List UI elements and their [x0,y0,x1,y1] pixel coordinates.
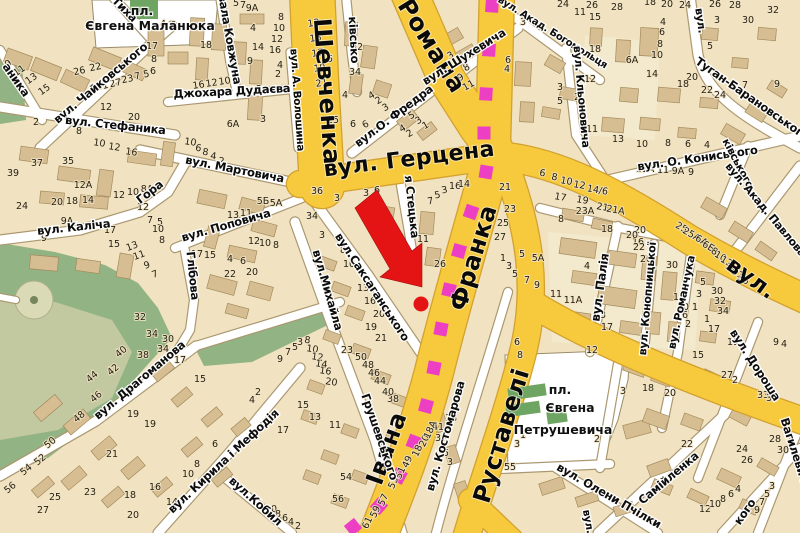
building-number: 16 [149,482,161,493]
building-number: 6 [150,66,156,77]
map-viewport[interactable]: 9111315226223127237512208101216353739178… [0,0,800,533]
building-number: 9 [688,167,694,178]
building-number: 22 [633,242,645,253]
building-number: 8 [665,138,671,149]
building-number: 15 [692,350,704,361]
building-number: 27 [37,505,49,516]
route-dash [479,165,494,180]
building-number: 17 [554,191,568,204]
building-number: 39 [7,168,19,179]
building-number: 19 [127,409,139,420]
building [619,87,638,103]
building-number: 3 [319,230,325,241]
building-number: 34 [146,329,158,340]
building [758,27,777,41]
building-number: 3 [557,82,563,93]
building [640,117,661,131]
building-number: 17 [277,425,289,436]
building-number: 14 [458,179,470,190]
building-number: 26 [586,0,598,11]
building-number: 4 [660,17,666,28]
building-number: 20 [127,510,139,521]
building-number: 10 [273,23,285,34]
building [678,127,697,139]
building-number: 34 [717,306,729,317]
building-number: 12 [100,102,112,113]
building-number: 38 [137,350,149,361]
building [519,102,534,123]
building-number: 15 [204,250,216,261]
building-number: 22 [681,439,693,450]
building-number: 6 [659,27,665,38]
building-number: 4 [227,254,233,265]
building-number: 8 [273,240,279,251]
building-number: 2 [732,375,738,386]
building-number: 2 [33,117,39,128]
building-number: 9 [534,280,540,291]
building-number: 14 [82,195,94,206]
building [168,52,188,64]
building-number: 4 [342,90,348,101]
building-number: 27 [494,232,506,243]
building-number: 5 [233,0,239,9]
building-number: 16 [125,146,139,159]
building-number: 2 [685,319,691,330]
building-number: 2 [295,521,301,532]
building-number: 5А [270,198,283,209]
building [195,58,208,81]
building-number: 10 [560,175,574,188]
building-number: 6А [227,119,240,130]
building-number: 8 [278,12,284,23]
building [361,45,378,69]
building-number: 12 [586,345,598,356]
building-number: 25 [49,492,61,503]
building-number: 3 [447,457,453,468]
building-number: 10 [259,238,271,249]
building-number: 50 [355,352,367,363]
building-number: 10 [93,137,107,150]
building-number: 36 [311,186,323,197]
building-number: 4 [250,23,256,34]
building-number: 12 [573,179,587,192]
building-number: 11А [564,295,583,306]
route-dash [479,87,493,101]
building-number: 18 [66,196,78,207]
street-label: ківсько [346,16,362,64]
building [732,57,749,68]
building-number: 13 [612,134,624,145]
building-number: 37 [31,158,43,169]
building-number: 10 [636,139,648,150]
building [601,117,624,133]
building-number: 20 [661,0,673,10]
building-number: 22 [701,85,713,96]
building-number: 3 [620,386,626,397]
building-number: 11 [574,7,586,18]
place-label: пл. [549,382,572,397]
building-number: 5 [700,277,706,288]
marker-dot[interactable] [414,297,429,312]
building-number: 3 [696,289,702,300]
building-number: 1 [704,314,710,325]
building-number: 23 [341,345,353,356]
building-number: 3 [714,15,720,26]
building-number: 18 [200,40,212,51]
building-number: 20 [626,230,638,241]
building-number: 26 [434,259,446,270]
building-number: 5 [557,96,563,107]
street[interactable] [0,297,16,300]
building-number: 21 [106,449,118,460]
building-number: 10 [651,50,663,61]
building-number: 30 [742,15,754,26]
building-number: 6 [240,256,246,267]
building-number: 9 [247,56,253,67]
building-number: 17 [708,324,720,335]
building-number: 3 [334,193,340,204]
building-number: 4 [504,64,510,75]
building-number: 24 [714,90,726,101]
building [514,62,531,87]
place-label: Петрушевича [514,422,613,437]
building-number: 6 [212,439,218,450]
building-number: 30 [666,260,678,271]
building-number: 10 [182,469,194,480]
building-number: 19 [144,419,156,430]
building-number: 28 [729,0,741,11]
building-number: 21 [499,182,511,193]
building-number: 3 [260,114,266,125]
building-number: 28 [611,2,623,13]
building-number: 8 [159,235,165,246]
building-number: 20 [325,376,339,389]
building-number: 18 [677,79,689,90]
building-number: 4 [584,261,590,272]
building-number: 10 [152,224,164,235]
building-number: 35 [62,156,74,167]
building-number: 11 [550,289,562,300]
building-number: 24 [679,0,691,11]
building-number: 34 [306,211,318,222]
building-number: 4 [735,484,741,495]
building-number: 11 [329,420,341,431]
building-number: 21 [375,333,387,344]
fountain-dot [30,296,38,304]
building-number: 18 [642,383,654,394]
building-number: 5А [532,253,545,264]
building-number: 5 [512,269,518,280]
building-number: 15 [589,12,601,23]
building-number: 28 [769,434,781,445]
building-number: 12А [74,180,93,191]
building-number: 15 [108,239,120,250]
building-number: 32 [134,312,146,323]
building-number: 24 [557,0,569,10]
building-number: 3 [769,481,775,492]
place-label: Євгена [545,400,594,415]
building-number: 26 [709,0,721,10]
building-number: 4 [288,517,294,528]
building-number: 12 [108,141,122,154]
building-number: 18 [601,224,613,235]
building-number: 15 [194,374,206,385]
building-number: 24 [736,444,748,455]
building-number: 54 [340,472,352,483]
building-number: 32 [767,5,779,16]
building-number: 3 [297,337,303,348]
building-number: 9 [277,354,283,365]
building-number: 8 [194,459,200,470]
building-number: 18 [124,490,136,501]
building-number: 6 [685,139,691,150]
building-number: 15 [297,400,309,411]
building-number: 12 [113,190,125,201]
building-number: 8 [151,54,157,65]
building [29,255,58,271]
building-number: 8 [558,214,564,225]
route-dash [426,360,441,375]
building-number: 14 [252,42,264,53]
building-number: 14 [646,69,658,80]
building-number: 6 [514,337,520,348]
building-number: 20 [51,197,63,208]
building-number: 6 [728,489,734,500]
building-number: 6А [626,55,639,66]
building-number: 18 [644,0,656,8]
building-number: 6 [350,119,356,130]
building-number: 8 [657,39,663,50]
map-canvas[interactable]: 9111315226223127237512208101216353739178… [0,0,800,533]
building-number: 7 [524,275,530,286]
building-number: 13 [309,412,321,423]
building-number: 34 [349,67,361,78]
building-number: 3 [514,439,520,450]
building-number: 22 [224,269,236,280]
building-number: 20 [664,388,676,399]
building-number: 5 [707,41,713,52]
building-number: 23 [504,204,516,215]
building-number: 24 [16,201,28,212]
building-number: 40 [382,387,394,398]
building-number: 8 [720,494,726,505]
building-number: 12 [271,34,283,45]
building-number: 16 [269,45,281,56]
building-number: 17 [601,322,613,333]
building-number: 5 [519,249,525,260]
route-dash [433,321,448,336]
building-number: 9 [773,337,779,348]
building-number: 8 [517,350,523,361]
building-number: 7 [285,347,291,358]
building-number: 9А [246,3,259,14]
building-number: 4 [781,339,787,350]
main-road[interactable] [493,0,497,145]
building-number: 2 [255,387,261,398]
place-label: Євгена Маланюка [85,18,215,33]
building-number: 19 [365,322,377,333]
building-number: 23А [576,206,595,217]
building-number: 1 [692,302,698,313]
building-number: 20 [246,267,258,278]
building-number: 2 [275,69,281,80]
building-number: 23 [84,487,96,498]
building-number: 26 [741,455,753,466]
building-number: 9 [774,79,780,90]
building-number: 56 [332,494,344,505]
place-label: пл. [131,3,154,18]
